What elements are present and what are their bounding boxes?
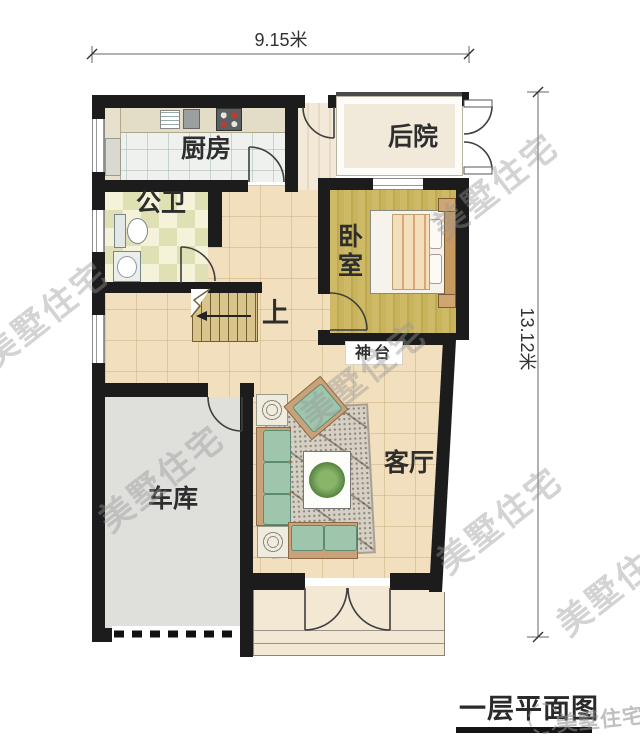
sofa-bottom — [288, 522, 358, 559]
sofa-cushion — [324, 525, 357, 551]
wall-garage-right — [240, 383, 253, 657]
backyard-door-arc-bottom — [464, 142, 492, 170]
bedroom-window — [373, 178, 423, 190]
kitchen-window — [92, 119, 105, 172]
altar-label-box: 神台 — [345, 341, 403, 365]
bathroom-sink-basin — [117, 256, 137, 278]
dim-tick — [533, 632, 543, 642]
room-label-bedroom: 卧室 — [338, 224, 365, 282]
dim-top-text: 9.15米 — [226, 26, 336, 52]
floor-plan-canvas: 厨房 后院 公卫 卧室 上 神台 客厅 车库 9.15米 13.12米 一层平面… — [0, 0, 640, 749]
bed-headboard — [444, 204, 456, 300]
bed-blanket — [392, 214, 430, 290]
wall-left — [92, 363, 105, 642]
room-label-living: 客厅 — [384, 450, 434, 479]
wall-garage-bottom-corner — [92, 628, 116, 642]
room-label-kitchen: 厨房 — [181, 136, 231, 165]
end-table — [257, 526, 289, 558]
sofa-cushion — [291, 525, 324, 551]
nightstand — [438, 294, 456, 308]
wall-bedroom-left — [318, 180, 330, 294]
wall-bathroom-right — [208, 180, 222, 247]
potted-plant — [309, 462, 345, 498]
stove — [216, 108, 242, 131]
watermark: 美墅住宅 — [545, 516, 640, 646]
toilet-bowl — [127, 218, 148, 244]
porch-step-line — [254, 643, 444, 644]
staircase — [192, 290, 258, 342]
fridge — [105, 138, 121, 176]
passage-floor — [298, 103, 336, 190]
sofa-cushion — [263, 430, 291, 462]
backyard-door-arc-top — [464, 106, 492, 134]
wall-bedroom-right — [456, 178, 469, 345]
wall-bottom-right-stub — [390, 573, 442, 590]
dim-tick — [464, 49, 474, 59]
backyard-door-leaf-bottom — [464, 167, 492, 174]
wall-stairhall — [92, 282, 262, 293]
kitchen-sink — [183, 109, 200, 129]
dim-right-text: 13.12米 — [515, 299, 541, 379]
stairs-up-label: 上 — [262, 298, 289, 329]
hall-window — [92, 315, 105, 363]
bed-pillow — [429, 254, 442, 284]
dish-rack — [160, 110, 180, 129]
dim-tick — [533, 87, 543, 97]
nightstand — [438, 198, 456, 212]
wall-passage-stub — [328, 95, 336, 108]
bathroom-window — [92, 210, 105, 252]
sofa-cushion — [263, 462, 291, 494]
wall-bottom-left-stub — [252, 573, 305, 590]
room-label-backyard: 后院 — [388, 124, 438, 153]
wall-backyard-corner — [462, 92, 469, 106]
altar-label: 神台 — [355, 345, 393, 362]
garage-door-gap — [112, 626, 240, 642]
wall-backyard-top — [336, 92, 469, 96]
bed-pillow — [429, 219, 442, 249]
wall-garage-top — [92, 383, 208, 397]
room-label-bathroom: 公卫 — [136, 190, 186, 219]
wall-kitchen-right — [285, 95, 298, 192]
plan-title-underline — [456, 727, 592, 733]
wall-left — [92, 95, 105, 119]
dim-tick — [87, 49, 97, 59]
toilet-tank — [114, 214, 126, 248]
porch-step-line — [254, 630, 444, 631]
sofa-cushion — [263, 494, 291, 525]
porch-floor — [253, 586, 445, 656]
stamp-circle — [528, 703, 559, 734]
room-label-garage: 车库 — [148, 486, 198, 515]
sofa-left — [256, 427, 291, 526]
wall-top — [92, 95, 305, 108]
end-table — [256, 394, 288, 426]
